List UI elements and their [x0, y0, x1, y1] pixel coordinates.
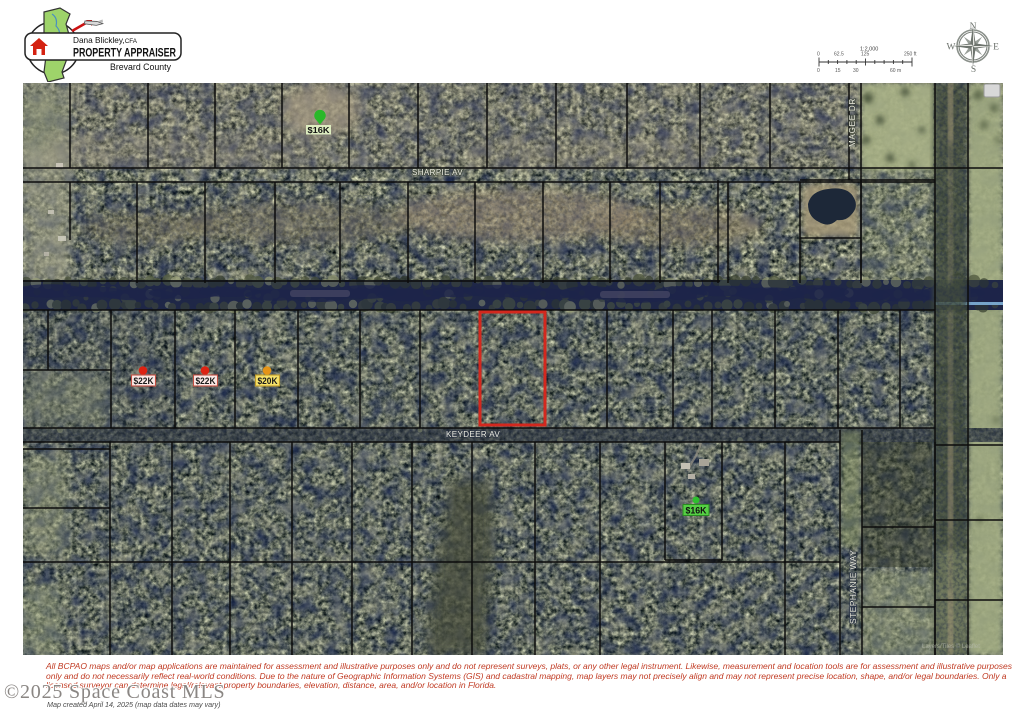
svg-text:$20K: $20K: [258, 376, 279, 386]
svg-text:Layers/Tiles © Leaflet: Layers/Tiles © Leaflet: [922, 643, 980, 650]
svg-text:STEPHANIE WAY: STEPHANIE WAY: [848, 550, 858, 624]
svg-text:62.5: 62.5: [834, 52, 844, 58]
svg-text:$16K: $16K: [308, 125, 331, 135]
svg-text:0: 0: [817, 68, 820, 74]
svg-text:S: S: [971, 65, 976, 75]
svg-text:125: 125: [861, 52, 870, 58]
svg-text:$22K: $22K: [196, 376, 217, 386]
svg-text:$16K: $16K: [686, 506, 708, 516]
svg-text:PROPERTY APPRAISER: PROPERTY APPRAISER: [73, 46, 176, 60]
svg-text:MAGEE DR: MAGEE DR: [848, 98, 857, 147]
svg-text:KEYDEER AV: KEYDEER AV: [446, 430, 500, 439]
svg-text:E: E: [993, 43, 999, 53]
svg-text:W: W: [947, 43, 956, 53]
svg-text:$22K: $22K: [134, 376, 155, 386]
svg-text:Brevard County: Brevard County: [110, 62, 171, 72]
svg-text:30: 30: [853, 68, 859, 74]
svg-text:15: 15: [835, 68, 841, 74]
svg-text:SHARPIE AV: SHARPIE AV: [412, 168, 463, 177]
svg-text:250 ft: 250 ft: [904, 52, 917, 58]
svg-text:N: N: [970, 22, 977, 32]
svg-text:60 m: 60 m: [890, 68, 901, 74]
svg-text:0: 0: [817, 52, 820, 58]
